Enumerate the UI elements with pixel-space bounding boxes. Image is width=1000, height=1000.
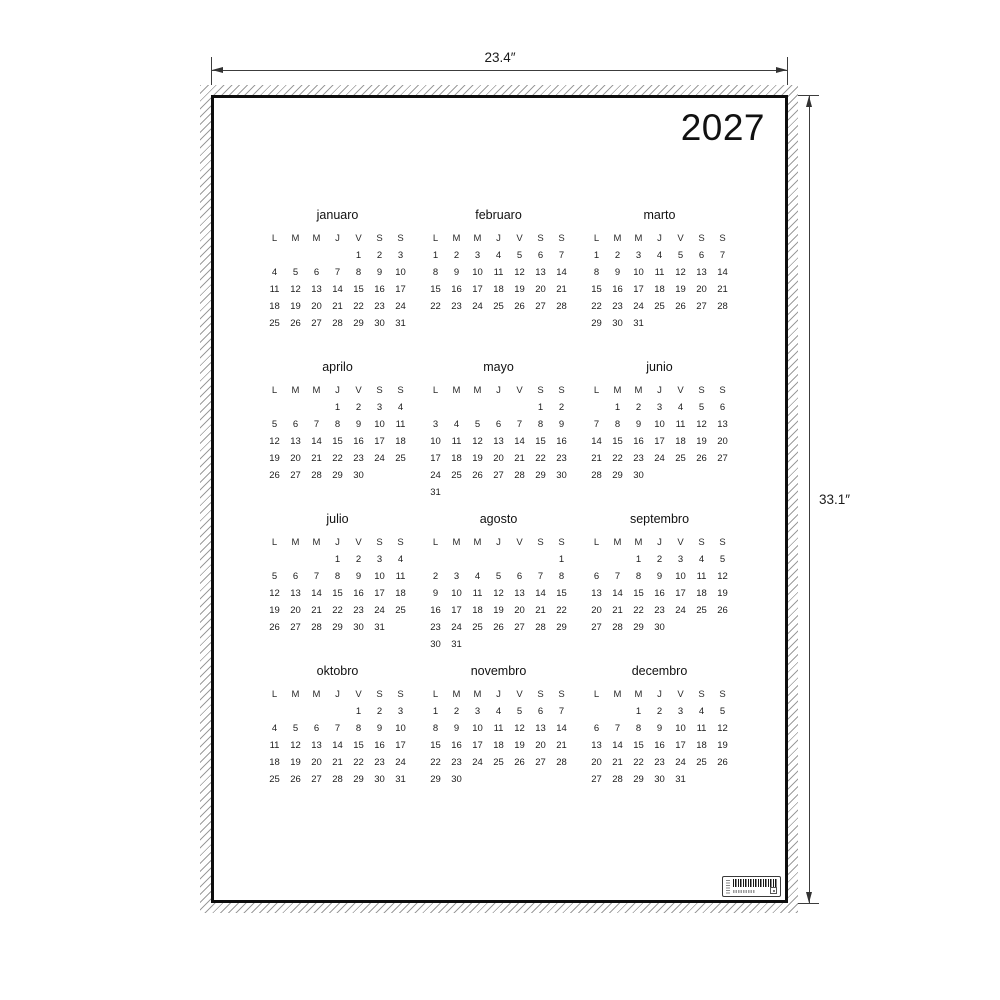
weekday-header: M <box>607 686 628 703</box>
day-cell: 16 <box>649 737 670 754</box>
weekday-header: S <box>369 230 390 247</box>
weekday-header: M <box>467 534 488 551</box>
day-cell: 12 <box>509 720 530 737</box>
day-cell: 11 <box>390 568 411 585</box>
day-cell: 24 <box>628 298 649 315</box>
weekday-header: S <box>712 686 733 703</box>
empty-day-cell <box>488 636 509 653</box>
weekday-header: L <box>264 382 285 399</box>
day-cell: 16 <box>425 602 446 619</box>
day-cell: 3 <box>467 247 488 264</box>
weekday-header: J <box>327 230 348 247</box>
day-cell: 7 <box>306 568 327 585</box>
day-cell: 10 <box>369 568 390 585</box>
empty-day-cell <box>649 467 670 484</box>
day-cell: 12 <box>509 264 530 281</box>
day-cell: 27 <box>488 467 509 484</box>
day-cell: 19 <box>691 433 712 450</box>
day-cell: 19 <box>509 737 530 754</box>
day-cell: 8 <box>551 568 572 585</box>
day-cell: 11 <box>670 416 691 433</box>
day-cell: 11 <box>488 720 509 737</box>
day-cell: 12 <box>285 737 306 754</box>
day-cell: 13 <box>586 737 607 754</box>
weekday-header: S <box>369 534 390 551</box>
day-cell: 20 <box>586 602 607 619</box>
calendar-poster: 2027 januaroLMMJVSS123456789101112131415… <box>211 95 788 903</box>
day-cell: 1 <box>348 247 369 264</box>
weekday-header: S <box>530 534 551 551</box>
day-cell: 7 <box>509 416 530 433</box>
product-label <box>722 876 781 897</box>
day-cell: 29 <box>425 771 446 788</box>
empty-day-cell <box>586 703 607 720</box>
day-cell: 2 <box>607 247 628 264</box>
day-cell: 28 <box>712 298 733 315</box>
day-cell: 13 <box>530 264 551 281</box>
day-cell: 11 <box>264 737 285 754</box>
day-cell: 28 <box>607 619 628 636</box>
day-cell: 25 <box>488 754 509 771</box>
day-cell: 12 <box>712 720 733 737</box>
month-grid: LMMJVSS123456789101112131415161718192021… <box>264 382 411 484</box>
day-cell: 3 <box>628 247 649 264</box>
day-cell: 4 <box>691 703 712 720</box>
day-cell: 17 <box>390 281 411 298</box>
arrow-left-icon <box>212 67 223 73</box>
weekday-header: M <box>628 534 649 551</box>
day-cell: 4 <box>390 551 411 568</box>
day-cell: 14 <box>327 281 348 298</box>
day-cell: 22 <box>348 298 369 315</box>
day-cell: 20 <box>306 754 327 771</box>
empty-day-cell <box>607 703 628 720</box>
empty-day-cell <box>488 771 509 788</box>
day-cell: 12 <box>264 433 285 450</box>
day-cell: 23 <box>649 754 670 771</box>
day-cell: 10 <box>425 433 446 450</box>
day-cell: 18 <box>691 585 712 602</box>
day-cell: 24 <box>649 450 670 467</box>
weekday-header: S <box>390 382 411 399</box>
month-grid: LMMJVSS123456789101112131415161718192021… <box>264 686 411 788</box>
day-cell: 17 <box>446 602 467 619</box>
month-oktobro: oktobroLMMJVSS12345678910111213141516171… <box>264 664 411 816</box>
empty-day-cell <box>306 247 327 264</box>
day-cell: 12 <box>488 585 509 602</box>
day-cell: 25 <box>467 619 488 636</box>
weekday-header: L <box>264 686 285 703</box>
day-cell: 5 <box>264 568 285 585</box>
day-cell: 25 <box>264 771 285 788</box>
day-cell: 6 <box>712 399 733 416</box>
weekday-header: S <box>530 686 551 703</box>
day-cell: 26 <box>467 467 488 484</box>
weekday-header: S <box>369 382 390 399</box>
day-cell: 3 <box>390 703 411 720</box>
weekday-header: M <box>446 230 467 247</box>
day-cell: 22 <box>530 450 551 467</box>
day-cell: 29 <box>628 771 649 788</box>
height-dimension-line <box>809 96 810 903</box>
weekday-header: J <box>649 534 670 551</box>
day-cell: 9 <box>607 264 628 281</box>
day-cell: 1 <box>551 551 572 568</box>
day-cell: 10 <box>369 416 390 433</box>
weekday-header: M <box>607 230 628 247</box>
day-cell: 18 <box>488 737 509 754</box>
day-cell: 8 <box>628 720 649 737</box>
empty-day-cell <box>425 399 446 416</box>
empty-day-cell <box>285 703 306 720</box>
day-cell: 6 <box>285 568 306 585</box>
empty-day-cell <box>467 484 488 501</box>
weekday-header: L <box>586 382 607 399</box>
day-cell: 27 <box>586 619 607 636</box>
day-cell: 26 <box>670 298 691 315</box>
day-cell: 14 <box>306 585 327 602</box>
day-cell: 21 <box>551 737 572 754</box>
day-cell: 18 <box>691 737 712 754</box>
empty-day-cell <box>306 399 327 416</box>
empty-day-cell <box>509 771 530 788</box>
month-mayo: mayoLMMJVSS12345678910111213141516171819… <box>425 360 572 512</box>
day-cell: 10 <box>390 720 411 737</box>
weekday-header: V <box>509 382 530 399</box>
month-grid: LMMJVSS123456789101112131415161718192021… <box>425 534 572 653</box>
day-cell: 7 <box>607 568 628 585</box>
weekday-header: V <box>670 686 691 703</box>
weekday-header: M <box>607 534 628 551</box>
month-title: agosto <box>425 512 572 527</box>
day-cell: 23 <box>369 754 390 771</box>
day-cell: 22 <box>327 450 348 467</box>
day-cell: 21 <box>327 754 348 771</box>
day-cell: 17 <box>649 433 670 450</box>
empty-day-cell <box>264 551 285 568</box>
weekday-header: L <box>586 686 607 703</box>
weekday-header: M <box>285 686 306 703</box>
day-cell: 21 <box>586 450 607 467</box>
day-cell: 2 <box>369 703 390 720</box>
day-cell: 21 <box>607 602 628 619</box>
day-cell: 23 <box>446 754 467 771</box>
day-cell: 2 <box>369 247 390 264</box>
empty-day-cell <box>488 484 509 501</box>
weekday-header: V <box>509 686 530 703</box>
day-cell: 24 <box>425 467 446 484</box>
day-cell: 8 <box>327 416 348 433</box>
day-cell: 30 <box>369 771 390 788</box>
day-cell: 5 <box>488 568 509 585</box>
label-microtext <box>733 890 755 893</box>
day-cell: 18 <box>390 433 411 450</box>
day-cell: 13 <box>285 433 306 450</box>
day-cell: 16 <box>551 433 572 450</box>
day-cell: 19 <box>285 298 306 315</box>
day-cell: 4 <box>264 720 285 737</box>
empty-day-cell <box>551 771 572 788</box>
weekday-header: J <box>488 382 509 399</box>
weekday-header: S <box>712 230 733 247</box>
day-cell: 7 <box>306 416 327 433</box>
day-cell: 27 <box>712 450 733 467</box>
empty-day-cell <box>446 551 467 568</box>
day-cell: 1 <box>586 247 607 264</box>
day-cell: 24 <box>446 619 467 636</box>
day-cell: 29 <box>530 467 551 484</box>
day-cell: 17 <box>369 433 390 450</box>
day-cell: 30 <box>425 636 446 653</box>
day-cell: 22 <box>628 754 649 771</box>
day-cell: 2 <box>446 703 467 720</box>
day-cell: 24 <box>390 754 411 771</box>
day-cell: 3 <box>446 568 467 585</box>
month-aprilo: apriloLMMJVSS123456789101112131415161718… <box>264 360 411 512</box>
day-cell: 23 <box>649 602 670 619</box>
day-cell: 10 <box>446 585 467 602</box>
empty-day-cell <box>467 771 488 788</box>
day-cell: 1 <box>425 703 446 720</box>
day-cell: 28 <box>509 467 530 484</box>
empty-day-cell <box>509 551 530 568</box>
day-cell: 13 <box>691 264 712 281</box>
day-cell: 23 <box>425 619 446 636</box>
month-grid: LMMJVSS123456789101112131415161718192021… <box>264 534 411 636</box>
day-cell: 16 <box>348 433 369 450</box>
month-novembro: novembroLMMJVSS1234567891011121314151617… <box>425 664 572 816</box>
weekday-header: M <box>628 382 649 399</box>
month-grid: LMMJVSS123456789101112131415161718192021… <box>264 230 411 332</box>
day-cell: 13 <box>586 585 607 602</box>
empty-day-cell <box>530 636 551 653</box>
weekday-header: V <box>348 534 369 551</box>
weekday-header: S <box>390 686 411 703</box>
day-cell: 30 <box>628 467 649 484</box>
day-cell: 24 <box>369 450 390 467</box>
day-cell: 31 <box>369 619 390 636</box>
empty-day-cell <box>530 771 551 788</box>
day-cell: 8 <box>327 568 348 585</box>
empty-day-cell <box>425 551 446 568</box>
day-cell: 6 <box>488 416 509 433</box>
barcode-icon <box>733 879 777 887</box>
day-cell: 14 <box>551 264 572 281</box>
day-cell: 5 <box>285 264 306 281</box>
day-cell: 2 <box>628 399 649 416</box>
day-cell: 25 <box>390 450 411 467</box>
empty-day-cell <box>509 636 530 653</box>
day-cell: 15 <box>327 433 348 450</box>
weekday-header: V <box>348 382 369 399</box>
empty-day-cell <box>530 484 551 501</box>
day-cell: 9 <box>369 720 390 737</box>
day-cell: 26 <box>509 754 530 771</box>
day-cell: 10 <box>649 416 670 433</box>
day-cell: 10 <box>670 720 691 737</box>
day-cell: 11 <box>467 585 488 602</box>
empty-day-cell <box>509 399 530 416</box>
day-cell: 21 <box>306 450 327 467</box>
day-cell: 4 <box>264 264 285 281</box>
day-cell: 17 <box>670 585 691 602</box>
day-cell: 28 <box>327 315 348 332</box>
weekday-header: J <box>488 534 509 551</box>
empty-day-cell <box>446 399 467 416</box>
month-grid: LMMJVSS123456789101112131415161718192021… <box>586 686 733 788</box>
empty-day-cell <box>691 467 712 484</box>
month-marto: martoLMMJVSS1234567891011121314151617181… <box>586 208 733 360</box>
weekday-header: S <box>530 230 551 247</box>
weekday-header: S <box>369 686 390 703</box>
day-cell: 19 <box>264 450 285 467</box>
day-cell: 3 <box>467 703 488 720</box>
day-cell: 8 <box>586 264 607 281</box>
empty-day-cell <box>327 247 348 264</box>
day-cell: 28 <box>306 619 327 636</box>
day-cell: 29 <box>607 467 628 484</box>
empty-day-cell <box>264 247 285 264</box>
day-cell: 11 <box>691 720 712 737</box>
day-cell: 29 <box>586 315 607 332</box>
day-cell: 24 <box>467 298 488 315</box>
weekday-header: J <box>649 382 670 399</box>
day-cell: 8 <box>530 416 551 433</box>
day-cell: 31 <box>628 315 649 332</box>
day-cell: 10 <box>467 264 488 281</box>
day-cell: 20 <box>530 281 551 298</box>
months-grid: januaroLMMJVSS12345678910111213141516171… <box>264 208 733 816</box>
day-cell: 25 <box>691 754 712 771</box>
day-cell: 20 <box>285 450 306 467</box>
day-cell: 22 <box>327 602 348 619</box>
day-cell: 15 <box>425 737 446 754</box>
day-cell: 18 <box>649 281 670 298</box>
day-cell: 23 <box>348 450 369 467</box>
day-cell: 5 <box>712 551 733 568</box>
day-cell: 28 <box>551 754 572 771</box>
day-cell: 27 <box>530 754 551 771</box>
day-cell: 23 <box>607 298 628 315</box>
day-cell: 12 <box>264 585 285 602</box>
weekday-header: M <box>446 382 467 399</box>
day-cell: 9 <box>628 416 649 433</box>
day-cell: 15 <box>628 737 649 754</box>
day-cell: 9 <box>369 264 390 281</box>
day-cell: 13 <box>509 585 530 602</box>
day-cell: 20 <box>712 433 733 450</box>
empty-day-cell <box>327 703 348 720</box>
day-cell: 7 <box>551 247 572 264</box>
day-cell: 5 <box>509 247 530 264</box>
day-cell: 4 <box>467 568 488 585</box>
empty-day-cell <box>488 551 509 568</box>
empty-day-cell <box>712 771 733 788</box>
day-cell: 30 <box>607 315 628 332</box>
day-cell: 15 <box>348 281 369 298</box>
day-cell: 16 <box>348 585 369 602</box>
weekday-header: S <box>551 686 572 703</box>
empty-day-cell <box>670 467 691 484</box>
month-title: marto <box>586 208 733 223</box>
label-bottom-row <box>733 887 777 895</box>
weekday-header: M <box>446 686 467 703</box>
day-cell: 8 <box>425 264 446 281</box>
day-cell: 20 <box>285 602 306 619</box>
day-cell: 5 <box>691 399 712 416</box>
day-cell: 18 <box>670 433 691 450</box>
day-cell: 27 <box>691 298 712 315</box>
day-cell: 28 <box>607 771 628 788</box>
day-cell: 16 <box>369 737 390 754</box>
day-cell: 12 <box>467 433 488 450</box>
weekday-header: M <box>306 230 327 247</box>
day-cell: 21 <box>551 281 572 298</box>
weekday-header: L <box>586 230 607 247</box>
day-cell: 26 <box>264 619 285 636</box>
day-cell: 10 <box>390 264 411 281</box>
day-cell: 2 <box>348 551 369 568</box>
day-cell: 3 <box>390 247 411 264</box>
day-cell: 15 <box>327 585 348 602</box>
day-cell: 17 <box>467 281 488 298</box>
day-cell: 30 <box>348 619 369 636</box>
day-cell: 7 <box>607 720 628 737</box>
day-cell: 17 <box>425 450 446 467</box>
day-cell: 7 <box>586 416 607 433</box>
day-cell: 5 <box>264 416 285 433</box>
day-cell: 16 <box>446 737 467 754</box>
day-cell: 25 <box>446 467 467 484</box>
day-cell: 1 <box>628 551 649 568</box>
empty-day-cell <box>390 619 411 636</box>
day-cell: 19 <box>285 754 306 771</box>
day-cell: 23 <box>369 298 390 315</box>
day-cell: 5 <box>467 416 488 433</box>
day-cell: 15 <box>551 585 572 602</box>
weekday-header: S <box>712 534 733 551</box>
weekday-header: L <box>425 382 446 399</box>
day-cell: 15 <box>586 281 607 298</box>
day-cell: 8 <box>628 568 649 585</box>
day-cell: 16 <box>649 585 670 602</box>
day-cell: 19 <box>670 281 691 298</box>
day-cell: 2 <box>649 551 670 568</box>
day-cell: 25 <box>390 602 411 619</box>
day-cell: 16 <box>446 281 467 298</box>
day-cell: 30 <box>369 315 390 332</box>
empty-day-cell <box>369 467 390 484</box>
day-cell: 26 <box>488 619 509 636</box>
day-cell: 24 <box>369 602 390 619</box>
day-cell: 6 <box>586 568 607 585</box>
day-cell: 10 <box>467 720 488 737</box>
day-cell: 22 <box>348 754 369 771</box>
day-cell: 29 <box>327 467 348 484</box>
empty-day-cell <box>551 484 572 501</box>
empty-day-cell <box>467 399 488 416</box>
empty-day-cell <box>586 551 607 568</box>
day-cell: 25 <box>649 298 670 315</box>
weekday-header: M <box>467 382 488 399</box>
month-grid: LMMJVSS123456789101112131415161718192021… <box>586 230 733 332</box>
empty-day-cell <box>285 551 306 568</box>
month-septembro: septembroLMMJVSS123456789101112131415161… <box>586 512 733 664</box>
day-cell: 2 <box>425 568 446 585</box>
weekday-header: J <box>649 686 670 703</box>
empty-day-cell <box>712 467 733 484</box>
empty-day-cell <box>670 315 691 332</box>
